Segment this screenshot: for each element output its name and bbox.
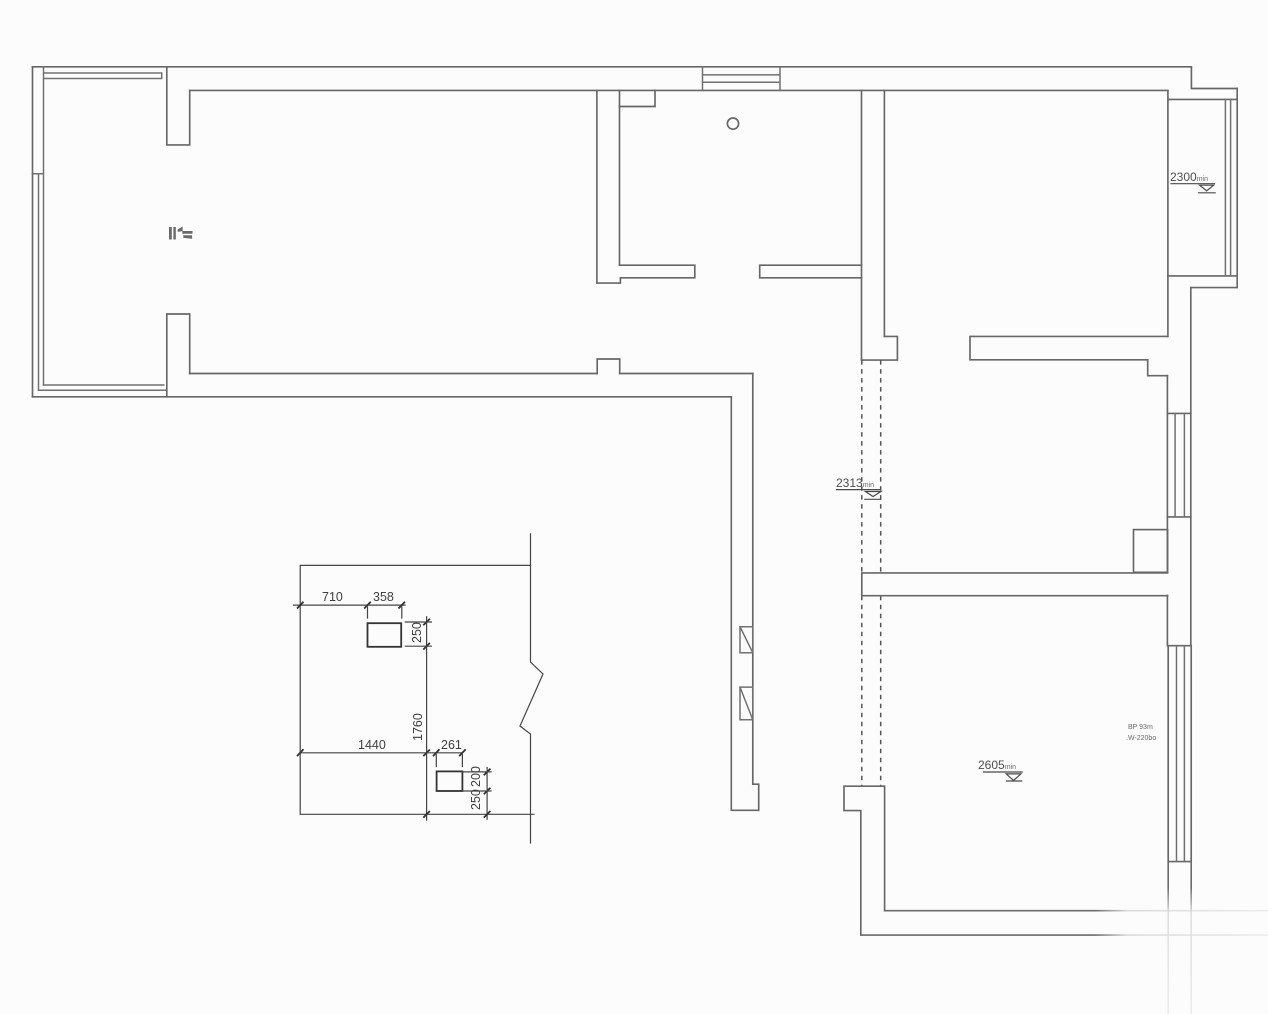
svg-text:1440: 1440 bbox=[358, 738, 386, 752]
svg-text:200: 200 bbox=[469, 766, 483, 787]
svg-text:710: 710 bbox=[322, 590, 343, 604]
svg-text:261: 261 bbox=[441, 738, 462, 752]
svg-text:358: 358 bbox=[373, 590, 394, 604]
svg-text:.W-220bo: .W-220bo bbox=[1126, 735, 1156, 742]
svg-text:250: 250 bbox=[410, 622, 424, 643]
svg-text:BP 93m: BP 93m bbox=[1128, 724, 1153, 731]
svg-text:250: 250 bbox=[469, 789, 483, 810]
svg-text:1760: 1760 bbox=[411, 713, 425, 741]
